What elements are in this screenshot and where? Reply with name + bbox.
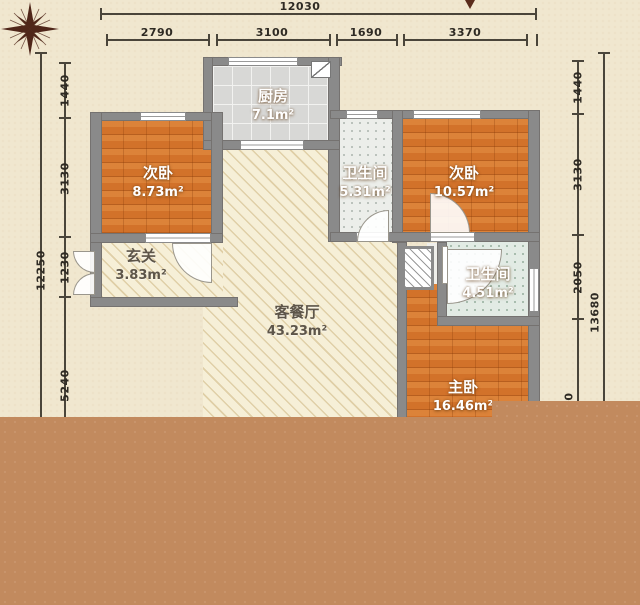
wall — [437, 316, 540, 326]
window — [140, 112, 186, 121]
dim-tick — [572, 234, 584, 236]
dim-tick — [208, 34, 210, 46]
room-name: 卫生间 — [423, 267, 553, 283]
room-name: 客餐厅 — [232, 305, 362, 321]
dim-top-seg-1: 3100 — [242, 26, 302, 39]
room-label-living-dining: 客餐厅 43.23m² — [232, 305, 362, 338]
dim-line — [403, 39, 527, 41]
window — [413, 110, 481, 119]
dim-tick — [536, 34, 538, 46]
dim-tick — [396, 34, 398, 46]
room-label-bedroom-1: 次卧 8.73m² — [93, 166, 223, 199]
dim-tick — [598, 52, 610, 54]
wall — [90, 297, 238, 307]
dim-tick — [526, 34, 528, 46]
dim-tick — [59, 236, 71, 238]
dim-top-seg-3: 3370 — [435, 26, 495, 39]
dim-line — [100, 13, 537, 15]
dim-left-seg-1: 3130 — [59, 151, 72, 207]
dim-tick — [216, 34, 218, 46]
dim-line — [40, 52, 42, 420]
room-label-kitchen: 厨房 7.1m² — [208, 89, 338, 122]
window — [228, 57, 298, 66]
dim-line — [603, 52, 605, 420]
room-area: 3.83m² — [76, 269, 206, 283]
room-area: 43.23m² — [232, 325, 362, 339]
window — [346, 110, 378, 119]
dim-left-seg-0: 1440 — [59, 63, 72, 119]
room-area: 7.1m² — [208, 109, 338, 123]
dim-left-seg-2: 1230 — [59, 240, 72, 296]
dim-line — [106, 39, 209, 41]
wall — [528, 110, 540, 420]
dim-tick — [336, 34, 338, 46]
dim-tick — [403, 34, 405, 46]
dim-left-total: 12250 — [35, 243, 48, 299]
room-area: 10.57m² — [399, 186, 529, 200]
dim-tick — [535, 8, 537, 20]
dim-tick — [59, 296, 71, 298]
window — [240, 140, 304, 150]
dim-right-total: 13680 — [589, 285, 602, 341]
room-label-entry-hall: 玄关 3.83m² — [76, 249, 206, 282]
dim-tick — [329, 34, 331, 46]
dim-top-seg-2: 1690 — [336, 26, 396, 39]
cursor-icon — [465, 0, 475, 9]
room-name: 次卧 — [399, 166, 529, 182]
floorplan-canvas: 12030 2790 3100 1690 3370 12250 1440 313… — [0, 0, 640, 605]
room-area: 8.73m² — [93, 186, 223, 200]
room-name: 玄关 — [76, 249, 206, 265]
dim-top-total: 12030 — [270, 0, 330, 13]
room-area: 4.51m² — [423, 287, 553, 301]
dim-line — [336, 39, 397, 41]
room-name: 主卧 — [398, 380, 528, 396]
room-name: 厨房 — [208, 89, 338, 105]
dim-right-seg-2: 2050 — [572, 250, 585, 306]
dim-left-seg-3: 5240 — [59, 358, 72, 414]
dim-right-seg-1: 3130 — [572, 147, 585, 203]
dim-tick — [35, 52, 47, 54]
room-name: 次卧 — [93, 166, 223, 182]
cutoff-overlay — [0, 417, 640, 605]
room-label-bedroom-2: 次卧 10.57m² — [399, 166, 529, 199]
dim-right-seg-0: 1440 — [572, 60, 585, 116]
room-label-bathroom-2: 卫生间 4.51m² — [423, 267, 553, 300]
dim-top-seg-0: 2790 — [127, 26, 187, 39]
door-opening — [145, 233, 211, 243]
compass-icon — [0, 2, 64, 60]
kitchen-door-icon — [311, 61, 331, 78]
dim-line — [216, 39, 330, 41]
door-opening — [430, 232, 475, 242]
dim-tick — [106, 34, 108, 46]
dim-tick — [572, 318, 584, 320]
dim-tick — [100, 8, 102, 20]
